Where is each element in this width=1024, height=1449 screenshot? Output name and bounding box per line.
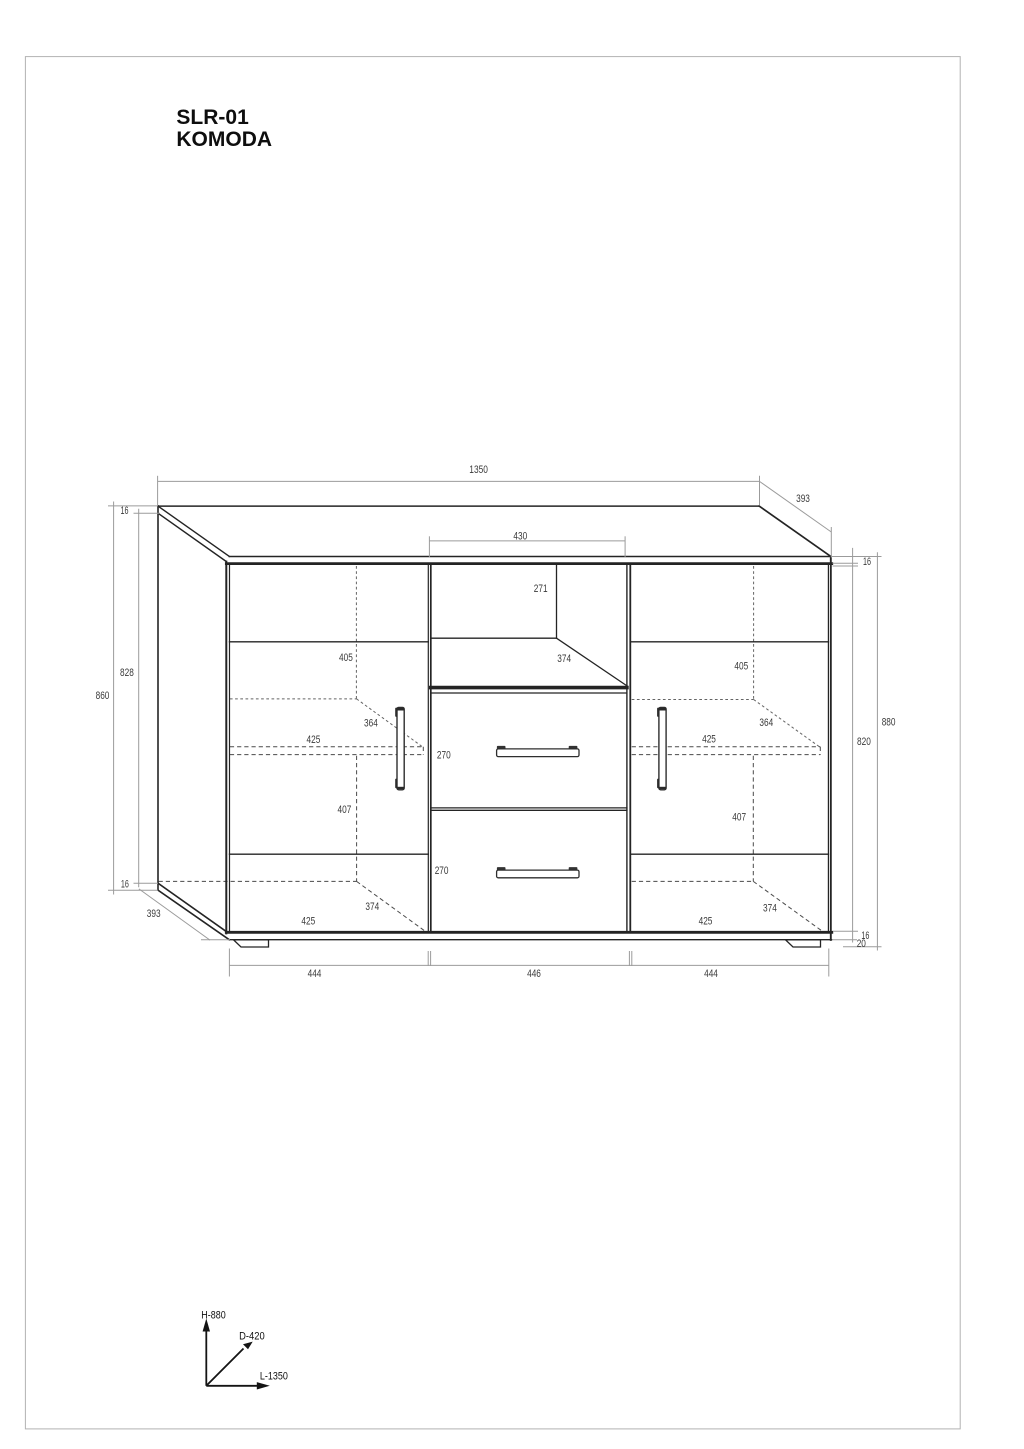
svg-text:820: 820 <box>857 736 871 748</box>
svg-text:393: 393 <box>796 493 810 505</box>
svg-text:374: 374 <box>763 903 777 915</box>
svg-text:425: 425 <box>307 734 321 746</box>
svg-text:270: 270 <box>435 865 449 877</box>
svg-text:444: 444 <box>308 968 322 980</box>
svg-text:860: 860 <box>96 690 110 702</box>
svg-text:364: 364 <box>364 718 378 730</box>
svg-text:16: 16 <box>863 556 871 568</box>
svg-text:425: 425 <box>699 916 713 928</box>
svg-text:444: 444 <box>704 968 718 980</box>
svg-text:364: 364 <box>759 717 773 729</box>
svg-text:20: 20 <box>857 938 866 950</box>
svg-text:425: 425 <box>702 734 716 746</box>
svg-text:16: 16 <box>121 879 129 891</box>
svg-text:407: 407 <box>338 804 352 816</box>
svg-text:374: 374 <box>365 901 379 913</box>
svg-text:393: 393 <box>147 908 161 920</box>
svg-text:1350: 1350 <box>469 464 488 476</box>
svg-text:430: 430 <box>513 531 527 543</box>
svg-text:270: 270 <box>437 749 451 761</box>
svg-text:880: 880 <box>882 717 896 729</box>
svg-text:H-880: H-880 <box>201 1310 225 1322</box>
svg-text:L-1350: L-1350 <box>260 1371 288 1383</box>
svg-text:KOMODA: KOMODA <box>176 128 272 151</box>
svg-text:405: 405 <box>734 660 748 672</box>
svg-text:SLR-01: SLR-01 <box>176 106 249 129</box>
svg-text:405: 405 <box>339 652 353 664</box>
svg-text:828: 828 <box>120 667 134 679</box>
svg-text:425: 425 <box>301 916 315 928</box>
svg-text:D-420: D-420 <box>239 1330 265 1342</box>
svg-text:271: 271 <box>534 583 548 595</box>
svg-text:16: 16 <box>121 505 129 517</box>
svg-text:446: 446 <box>527 968 541 980</box>
svg-text:374: 374 <box>557 653 571 665</box>
svg-text:407: 407 <box>732 812 746 824</box>
